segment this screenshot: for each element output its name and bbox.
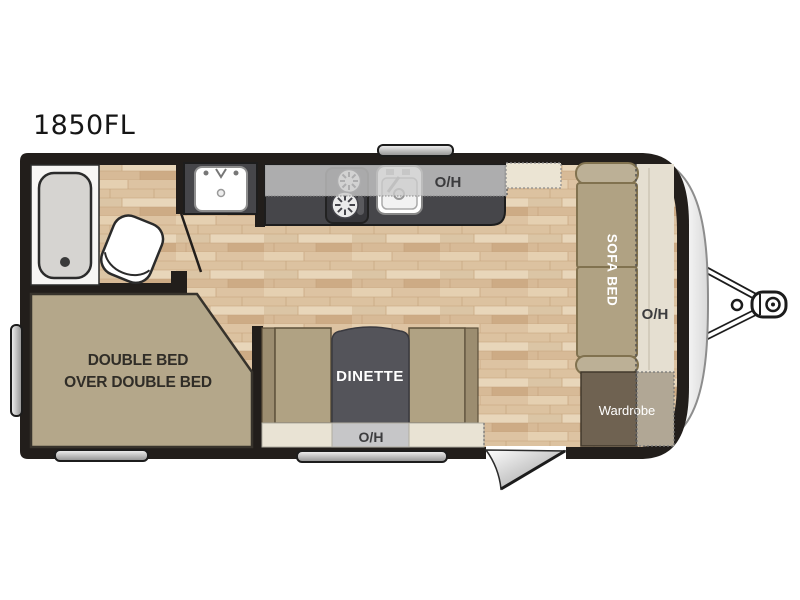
- bathroom-vanity: [184, 163, 257, 214]
- dinette-overhead-band: O/H: [262, 423, 484, 447]
- window-top: [378, 145, 453, 156]
- hitch-jack-circle: [732, 300, 742, 310]
- dinette-bench-left: [275, 328, 331, 423]
- kitchen-overhead-cabinet: O/H: [265, 165, 507, 196]
- dinette-bench-left-back: [262, 328, 275, 423]
- floorplan-drawing: O/H O/H SOFA BED Wardrobe: [0, 0, 800, 600]
- dinette-bench-right: [409, 328, 465, 423]
- dinette-bench-right-back: [465, 328, 478, 423]
- sofa-armrest: [576, 163, 638, 184]
- dinette-label: DINETTE: [336, 368, 404, 385]
- bed-label-line1: DOUBLE BED: [88, 352, 188, 369]
- bed-label-line2: OVER DOUBLE BED: [64, 374, 212, 391]
- window-bottom-middle: [297, 451, 447, 462]
- hitch-coupler: [732, 292, 786, 317]
- front-overhead-band: O/H: [636, 164, 674, 372]
- bathtub: [31, 165, 99, 285]
- kitchen-overhead-label: O/H: [435, 174, 462, 191]
- sofa-bed-label: SOFA BED: [605, 234, 620, 307]
- overhead-cabinet-top: [506, 163, 561, 188]
- floorplan-page: 1850FL: [0, 0, 800, 600]
- wardrobe-label: Wardrobe: [599, 403, 656, 418]
- window-bottom-left: [55, 450, 148, 461]
- wardrobe: Wardrobe: [581, 372, 674, 446]
- entry-door: [486, 446, 566, 489]
- bathroom-sink: [195, 167, 247, 211]
- front-overhead-label: O/H: [642, 306, 669, 323]
- dinette: DINETTE O/H: [262, 327, 484, 447]
- window-left: [11, 325, 22, 416]
- tub-drain: [60, 257, 70, 267]
- dinette-overhead-label: O/H: [359, 429, 384, 445]
- sofa-bed: SOFA BED: [576, 163, 638, 374]
